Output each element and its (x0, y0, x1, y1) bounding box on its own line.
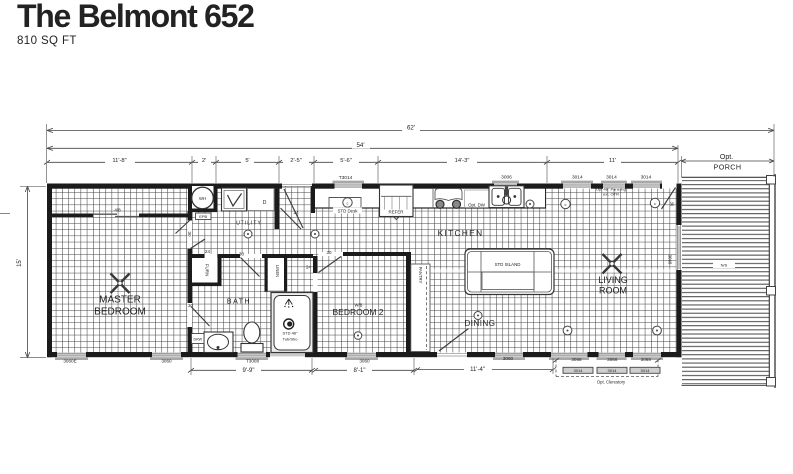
svg-text:3014: 3014 (574, 368, 584, 373)
svg-text:Opt.: Opt. (720, 154, 733, 161)
svg-text:LINEN: LINEN (275, 265, 280, 277)
svg-text:2': 2' (202, 158, 206, 164)
svg-text:MASTER: MASTER (99, 295, 141, 306)
svg-text:3060: 3060 (503, 356, 514, 361)
svg-text:3068: 3068 (571, 357, 582, 362)
svg-text:30: 30 (188, 303, 194, 308)
svg-text:30: 30 (239, 251, 245, 256)
svg-text:3068: 3068 (607, 357, 618, 362)
svg-text:UTILITY: UTILITY (236, 221, 262, 227)
svg-text:62': 62' (407, 125, 415, 132)
svg-text:3068: 3068 (641, 357, 652, 362)
svg-text:3060: 3060 (359, 358, 370, 363)
svg-text:54': 54' (356, 142, 364, 149)
svg-text:5': 5' (245, 158, 249, 164)
svg-text:c: c (347, 201, 349, 205)
svg-text:Opt. DW: Opt. DW (468, 203, 486, 208)
svg-text:9'-9": 9'-9" (243, 368, 255, 374)
svg-text:3014: 3014 (641, 175, 652, 181)
svg-text:3014: 3014 (606, 175, 617, 181)
svg-text:3014: 3014 (608, 368, 618, 373)
svg-text:LIVING: LIVING (598, 275, 628, 285)
svg-text:3060: 3060 (161, 359, 172, 364)
svg-text:15': 15' (17, 259, 23, 267)
svg-text:24: 24 (205, 249, 211, 254)
svg-text:D: D (263, 200, 267, 206)
svg-text:c: c (654, 202, 656, 206)
svg-text:N/S: N/S (721, 262, 728, 267)
svg-text:DRW: DRW (194, 338, 203, 342)
svg-text:3014: 3014 (641, 368, 651, 373)
svg-text:STD ISLAND: STD ISLAND (495, 262, 521, 267)
svg-text:Tub/Sho: Tub/Sho (283, 337, 299, 342)
svg-text:The Belmont 652: The Belmont 652 (17, 0, 254, 34)
svg-text:3060E: 3060E (63, 359, 76, 364)
svg-text:WH: WH (199, 196, 206, 201)
svg-text:11'-8": 11'-8" (112, 158, 126, 164)
svg-text:4/8: 4/8 (114, 208, 121, 213)
svg-text:BEDROOM: BEDROOM (94, 306, 146, 317)
svg-text:5'-6": 5'-6" (340, 158, 352, 164)
svg-text:3006: 3006 (501, 175, 512, 181)
svg-text:T3014: T3014 (339, 175, 353, 181)
svg-text:BEDROOM 2: BEDROOM 2 (332, 307, 383, 317)
svg-text:DINING: DINING (465, 319, 496, 328)
svg-text:PANTRY: PANTRY (418, 267, 423, 284)
svg-text:ROOM: ROOM (599, 286, 627, 296)
svg-text:T3008: T3008 (246, 359, 259, 364)
svg-text:14'-3": 14'-3" (455, 158, 470, 164)
svg-text:c: c (565, 203, 567, 207)
svg-text:3068: 3068 (668, 255, 673, 265)
svg-text:PORCH: PORCH (714, 163, 742, 172)
svg-text:REFER: REFER (389, 210, 404, 215)
svg-text:8'-1": 8'-1" (354, 368, 366, 374)
svg-text:2'-5": 2'-5" (290, 158, 302, 164)
svg-text:30: 30 (187, 231, 192, 237)
svg-text:STD 46": STD 46" (283, 331, 299, 336)
svg-text:30: 30 (670, 202, 675, 207)
svg-text:STD Desk: STD Desk (337, 208, 358, 213)
svg-text:BATH: BATH (227, 299, 251, 306)
svg-text:EPB: EPB (199, 214, 207, 219)
svg-text:Opt. Clerestory: Opt. Clerestory (597, 380, 626, 385)
svg-text:ext. OTR: ext. OTR (603, 192, 619, 197)
svg-text:3014: 3014 (572, 175, 583, 181)
svg-text:KITCHEN: KITCHEN (438, 228, 484, 238)
svg-text:24: 24 (306, 265, 312, 270)
svg-text:FURN: FURN (205, 264, 210, 277)
svg-text:30: 30 (326, 250, 332, 255)
svg-text:810 SQ FT: 810 SQ FT (17, 35, 77, 47)
svg-text:11': 11' (609, 158, 616, 164)
svg-text:11'-4": 11'-4" (470, 367, 485, 373)
